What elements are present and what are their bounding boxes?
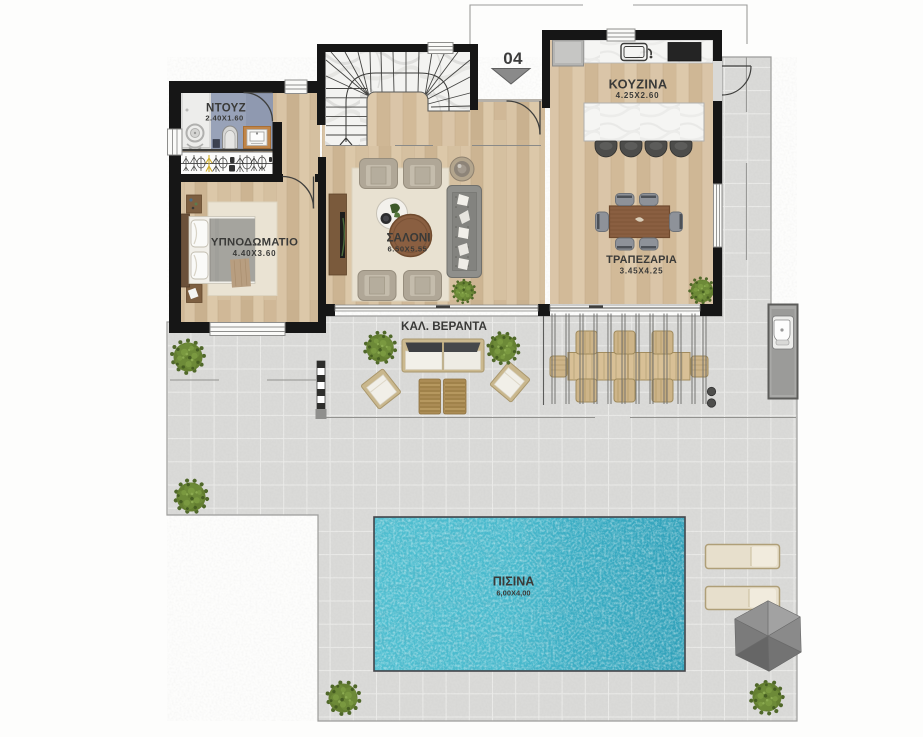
svg-text:2.40Χ1.60: 2.40Χ1.60 (205, 114, 243, 123)
svg-text:3.45Χ4.25: 3.45Χ4.25 (620, 267, 664, 276)
svg-text:ΚΟΥΖΙΝΑ: ΚΟΥΖΙΝΑ (609, 77, 668, 92)
svg-text:6.50Χ5.55: 6.50Χ5.55 (387, 245, 427, 254)
svg-text:6,00Χ4,00: 6,00Χ4,00 (496, 589, 530, 598)
svg-text:ΤΡΑΠΕΖΑΡΙΑ: ΤΡΑΠΕΖΑΡΙΑ (606, 254, 677, 266)
svg-text:4.40Χ3.60: 4.40Χ3.60 (233, 249, 277, 258)
svg-text:ΣΑΛΟΝΙ: ΣΑΛΟΝΙ (386, 231, 430, 245)
svg-text:4.25Χ2.60: 4.25Χ2.60 (616, 91, 660, 100)
svg-text:04: 04 (503, 49, 523, 68)
svg-text:ΚΑΛ. ΒΕΡΑΝΤΑ: ΚΑΛ. ΒΕΡΑΝΤΑ (401, 320, 487, 333)
svg-text:ΥΠΝΟΔΩΜΑΤΙΟ: ΥΠΝΟΔΩΜΑΤΙΟ (211, 237, 298, 249)
svg-text:ΠΙΣΙΝΑ: ΠΙΣΙΝΑ (493, 575, 535, 589)
